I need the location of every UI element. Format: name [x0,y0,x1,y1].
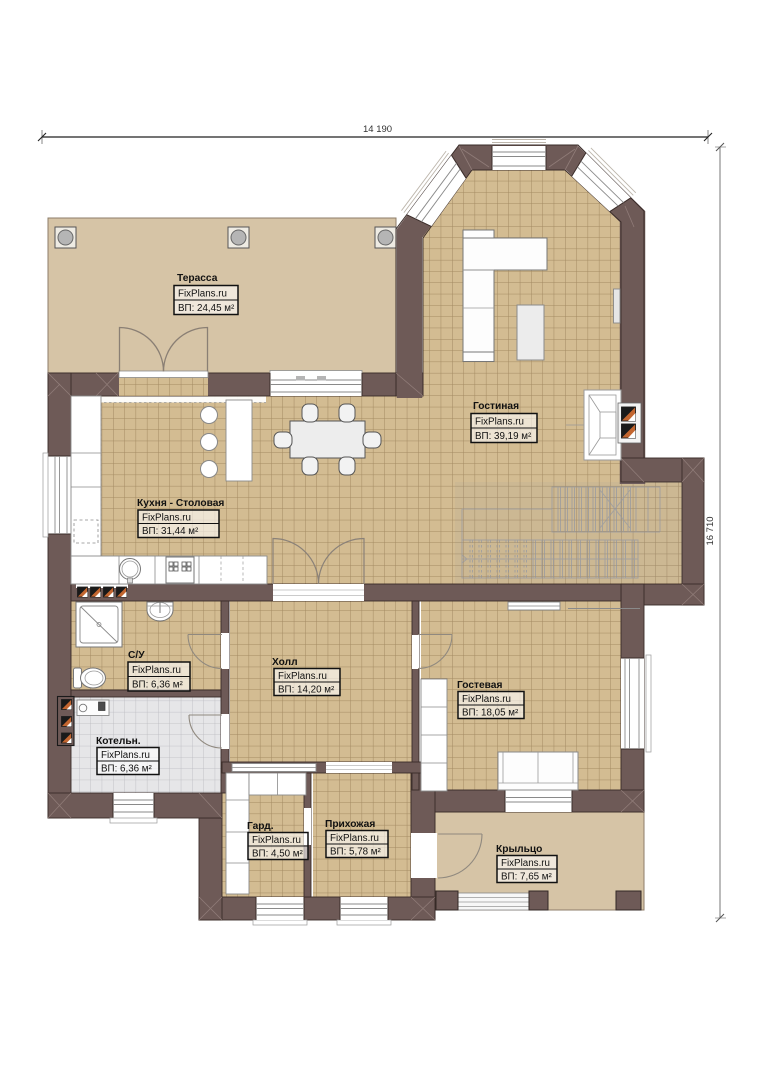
svg-text:ВП: 5,78 м²: ВП: 5,78 м² [330,847,382,858]
svg-text:ВП: 24,45 м²: ВП: 24,45 м² [178,303,235,314]
svg-text:Крыльцо: Крыльцо [496,844,542,855]
svg-text:FixPlans.ru: FixPlans.ru [252,835,301,846]
svg-text:ВП: 14,20 м²: ВП: 14,20 м² [278,685,335,696]
svg-text:FixPlans.ru: FixPlans.ru [501,858,550,869]
svg-text:ВП: 6,36 м²: ВП: 6,36 м² [132,680,184,691]
svg-text:С/У: С/У [128,650,145,661]
svg-text:FixPlans.ru: FixPlans.ru [330,833,379,844]
svg-text:ВП: 18,05 м²: ВП: 18,05 м² [462,708,519,719]
svg-text:ВП: 39,19 м²: ВП: 39,19 м² [475,431,532,442]
svg-text:16 710: 16 710 [705,516,716,545]
svg-text:FixPlans.ru: FixPlans.ru [475,417,524,428]
svg-text:FixPlans.ru: FixPlans.ru [178,289,227,300]
svg-text:FixPlans.ru: FixPlans.ru [278,671,327,682]
svg-text:Гостиная: Гостиная [473,401,519,412]
svg-text:Котельн.: Котельн. [96,736,141,747]
svg-text:Холл: Холл [272,657,298,668]
svg-text:FixPlans.ru: FixPlans.ru [132,665,181,676]
svg-text:Гард.: Гард. [247,821,274,832]
svg-text:FixPlans.ru: FixPlans.ru [142,513,191,524]
svg-text:ВП: 7,65 м²: ВП: 7,65 м² [501,872,553,883]
svg-text:ВП: 4,50 м²: ВП: 4,50 м² [252,849,304,860]
svg-text:Кухня - Столовая: Кухня - Столовая [137,498,224,509]
svg-text:Гостевая: Гостевая [457,680,502,691]
svg-text:ВП: 31,44 м²: ВП: 31,44 м² [142,526,199,537]
svg-text:Прихожая: Прихожая [325,819,375,830]
svg-text:FixPlans.ru: FixPlans.ru [462,694,511,705]
svg-text:FixPlans.ru: FixPlans.ru [101,750,150,761]
svg-text:Терасса: Терасса [177,273,218,284]
svg-text:14 190: 14 190 [363,124,392,135]
svg-text:ВП: 6,36 м²: ВП: 6,36 м² [101,764,153,775]
